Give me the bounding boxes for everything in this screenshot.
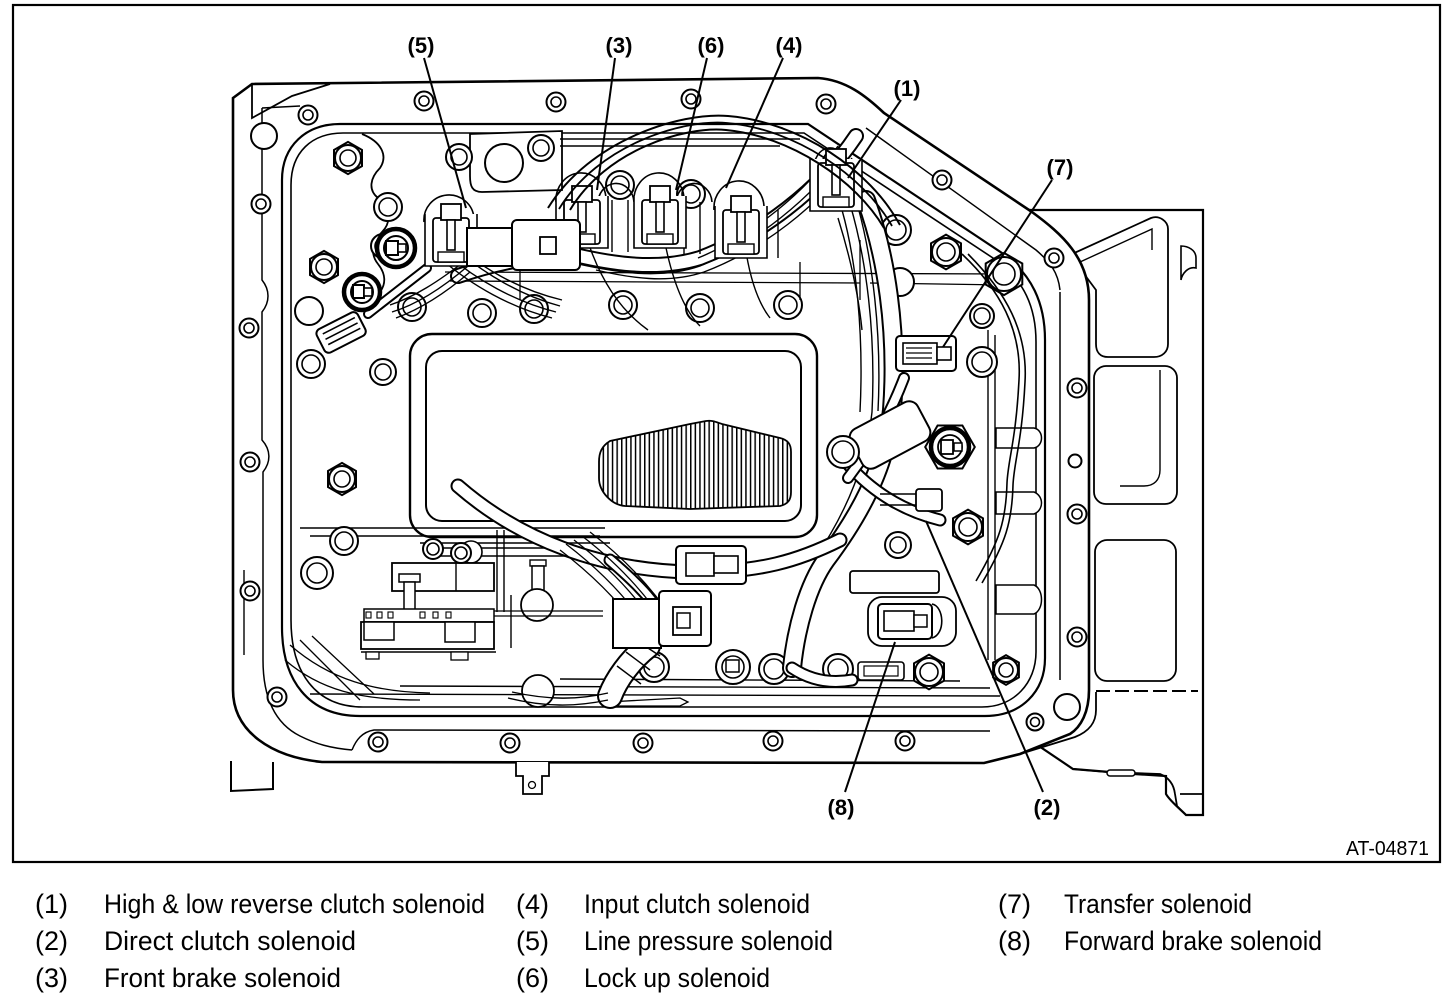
svg-text:(1): (1) (894, 76, 921, 101)
svg-text:(3): (3) (35, 963, 68, 993)
svg-text:(4): (4) (516, 889, 549, 919)
svg-text:Front brake solenoid: Front brake solenoid (104, 963, 341, 993)
svg-text:AT-04871: AT-04871 (1346, 838, 1429, 860)
svg-text:High & low reverse clutch sole: High & low reverse clutch solenoid (104, 889, 485, 919)
svg-text:(8): (8) (828, 795, 855, 820)
svg-text:Forward brake solenoid: Forward brake solenoid (1064, 926, 1322, 956)
svg-text:(5): (5) (408, 33, 435, 58)
svg-text:(8): (8) (998, 926, 1031, 956)
svg-text:(2): (2) (35, 926, 68, 956)
svg-text:(1): (1) (35, 889, 68, 919)
svg-text:Line pressure solenoid: Line pressure solenoid (584, 926, 833, 956)
svg-text:Lock up solenoid: Lock up solenoid (584, 963, 770, 993)
svg-text:Transfer solenoid: Transfer solenoid (1064, 889, 1252, 919)
svg-text:(2): (2) (1034, 795, 1061, 820)
svg-text:(6): (6) (516, 963, 549, 993)
svg-text:Input clutch solenoid: Input clutch solenoid (584, 889, 810, 919)
svg-text:(7): (7) (1047, 155, 1074, 180)
svg-text:(6): (6) (698, 33, 725, 58)
svg-text:(4): (4) (776, 33, 803, 58)
svg-text:(7): (7) (998, 889, 1031, 919)
svg-text:(5): (5) (516, 926, 549, 956)
svg-text:Direct clutch solenoid: Direct clutch solenoid (104, 926, 356, 956)
svg-text:(3): (3) (606, 33, 633, 58)
